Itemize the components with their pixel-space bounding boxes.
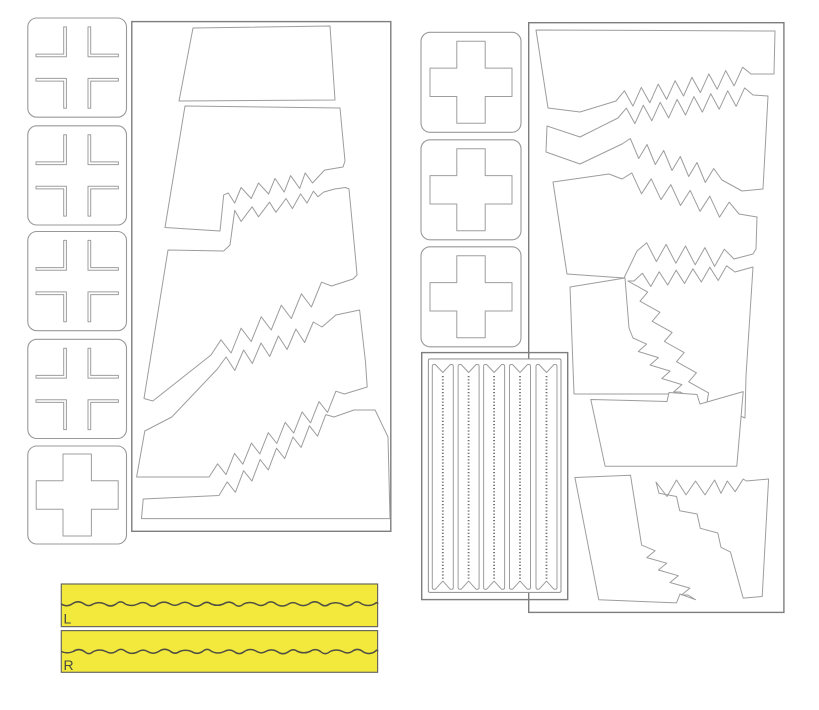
svg-text:L: L <box>64 611 72 627</box>
svg-text:R: R <box>64 657 74 673</box>
